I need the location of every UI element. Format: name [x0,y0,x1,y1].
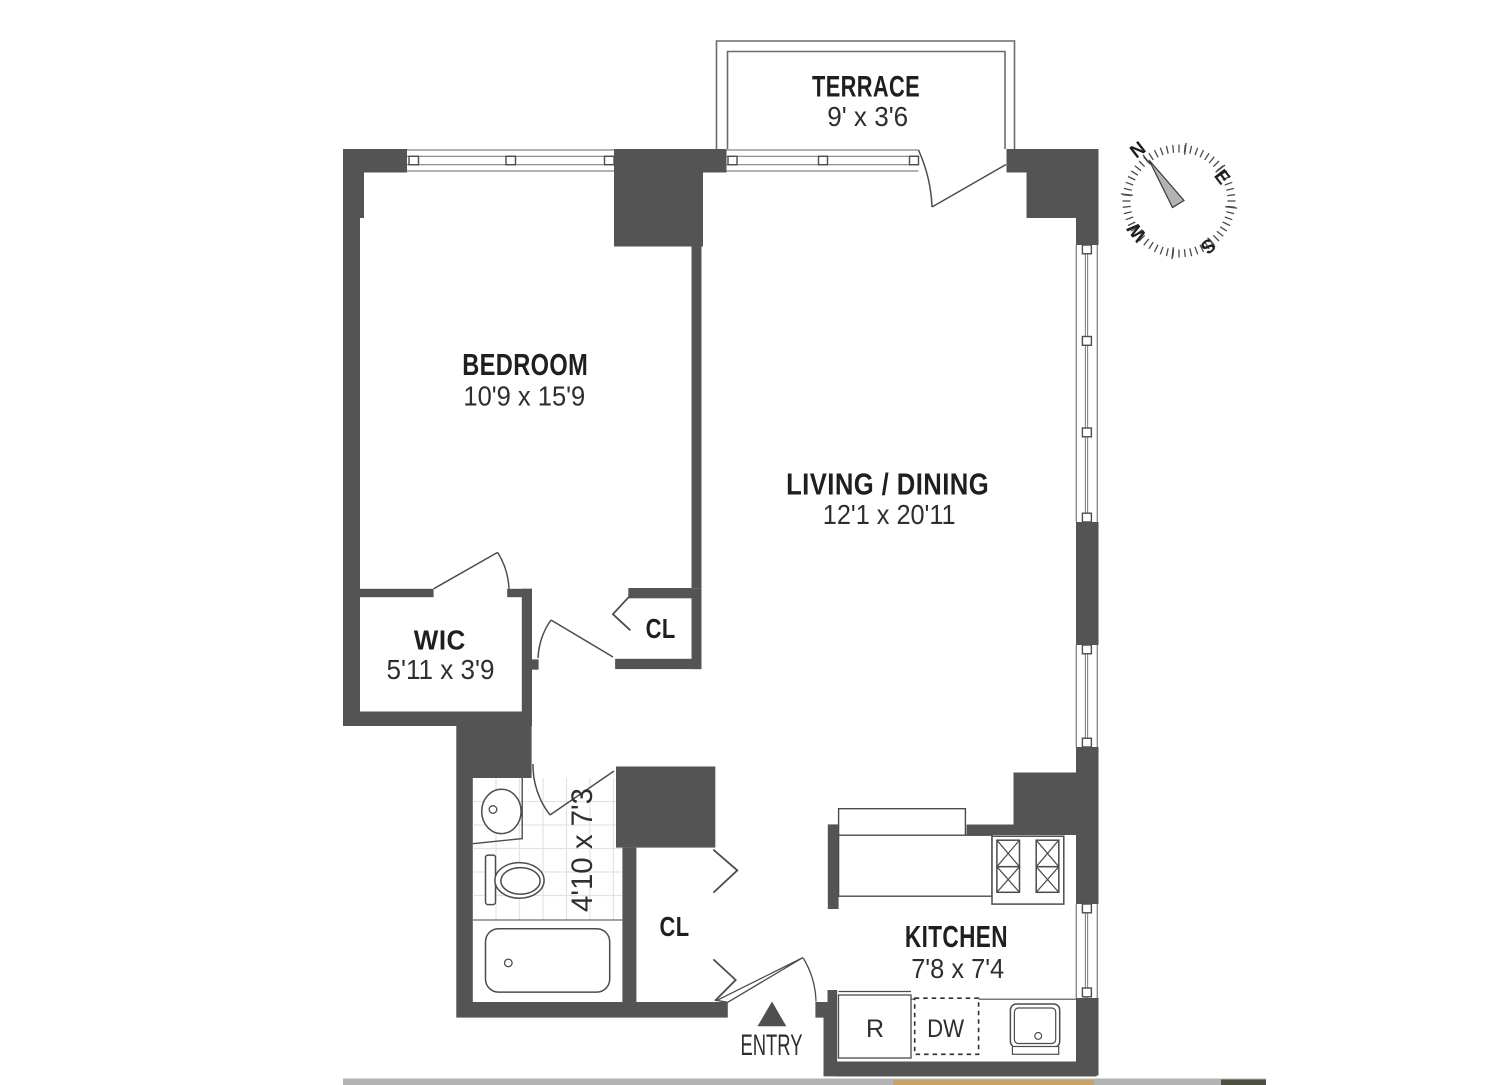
svg-text:CL: CL [646,613,676,644]
svg-text:TERRACE: TERRACE [812,71,920,104]
svg-text:LIVING / DINING: LIVING / DINING [786,467,989,501]
svg-text:DW: DW [927,1015,964,1043]
svg-text:9' x 3'6: 9' x 3'6 [827,101,908,132]
svg-text:4'10 x 7'3: 4'10 x 7'3 [566,788,599,912]
svg-text:BEDROOM: BEDROOM [462,348,588,382]
svg-text:ENTRY: ENTRY [741,1029,803,1062]
svg-text:R: R [866,1015,884,1043]
svg-text:KITCHEN: KITCHEN [905,920,1008,954]
svg-text:7'8 x 7'4: 7'8 x 7'4 [911,953,1004,984]
svg-text:5'11 x 3'9: 5'11 x 3'9 [387,654,495,685]
svg-text:10'9 x 15'9: 10'9 x 15'9 [463,380,585,411]
svg-text:WIC: WIC [414,625,466,656]
svg-text:CL: CL [660,911,690,942]
svg-text:12'1 x 20'11: 12'1 x 20'11 [823,499,956,530]
